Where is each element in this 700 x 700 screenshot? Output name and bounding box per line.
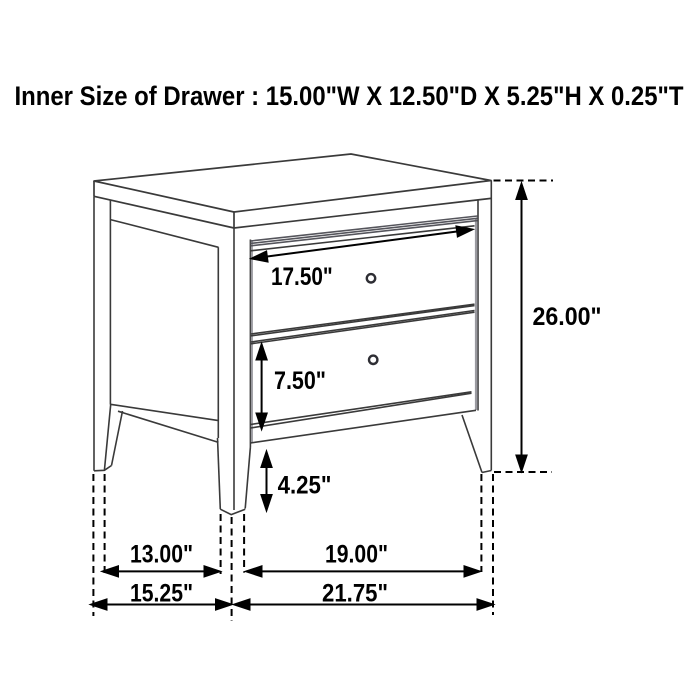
svg-text:17.50": 17.50" [271,263,333,291]
svg-text:19.00": 19.00" [325,541,388,569]
svg-text:26.00": 26.00" [533,303,602,331]
svg-text:13.00": 13.00" [130,541,193,569]
svg-text:15.25": 15.25" [130,580,193,608]
svg-text:4.25": 4.25" [278,472,332,500]
svg-text:Inner Size of Drawer : 15.00"W: Inner Size of Drawer : 15.00"W X 12.50"D… [15,81,684,111]
svg-text:21.75": 21.75" [322,580,388,608]
svg-text:7.50": 7.50" [274,367,326,395]
